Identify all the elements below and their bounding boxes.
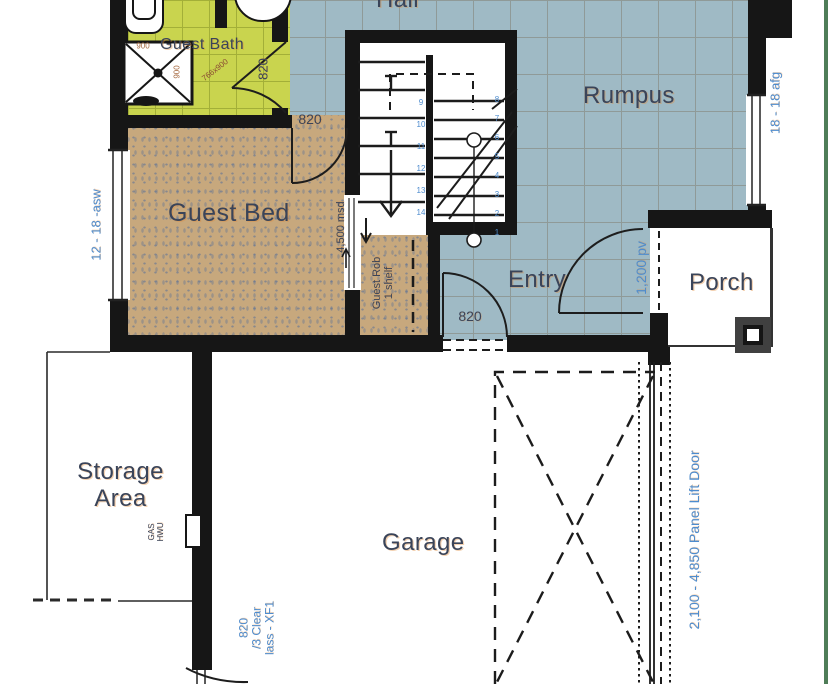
stair-tread-number: 4 — [495, 172, 499, 180]
garage-label: Garage — [382, 529, 464, 557]
guest-bed-label: Guest Bed — [168, 199, 290, 228]
stair-treads — [358, 62, 504, 215]
stair-tread-number: 2 — [495, 210, 499, 218]
stair-tread-number: 1 — [495, 229, 499, 237]
guest-robe-line2: 1 shelf — [383, 257, 395, 310]
stair-tread-number: 8 — [495, 96, 499, 104]
hwu-line2: HWU — [156, 522, 165, 541]
stair-down-arrow — [361, 150, 402, 242]
stair-tread-number: 6 — [495, 134, 499, 142]
hall-label: Hall — [376, 0, 419, 14]
bed-door-dim: 820 — [298, 111, 321, 127]
stair-tread-number: 9 — [419, 99, 423, 107]
stair-tread-number: 14 — [417, 209, 426, 217]
porch-label: Porch — [689, 269, 754, 297]
stair-tread-number: 3 — [495, 191, 499, 199]
front-door-dim: 1,200 pv — [633, 241, 649, 295]
page-border-line — [824, 0, 828, 684]
bed-door-arc — [292, 128, 347, 183]
stair-upper-flight-dashed — [390, 74, 473, 110]
garage-car-space — [495, 372, 655, 684]
shower-depth-dim: 900 — [173, 65, 182, 78]
left-window-dim: 12 - 18 -asw — [89, 189, 104, 261]
storage-area-label: Storage Area — [58, 458, 183, 512]
rumpus-label: Rumpus — [583, 82, 675, 110]
stair-tread-number: 11 — [417, 143, 425, 151]
stair-tread-number: 12 — [417, 165, 426, 173]
guest-robe-label: Guest Rob 1 shelf — [371, 257, 395, 310]
stair-tread-number: 7 — [495, 115, 499, 123]
garage-rear-door-arc — [186, 668, 248, 682]
window-glazing — [108, 95, 766, 684]
bath-door-arc — [232, 88, 286, 113]
garage-window-dim: 820 /3 Clear lass - XF1 — [238, 601, 277, 655]
guest-bath-label: Guest Bath — [160, 36, 244, 54]
garage-window-dim-line3: lass - XF1 — [264, 601, 277, 655]
stair-numbers-left-flight: 9 1011121314 — [414, 99, 428, 217]
garage-lift-door-lines — [639, 362, 670, 684]
entry-door-arc — [443, 273, 507, 337]
right-window-dim: 18 - 18 afg — [768, 72, 783, 134]
entry-door-dim: 820 — [458, 308, 481, 324]
stair-break-line — [437, 89, 517, 247]
garage-lift-door-dim: 2,100 - 4,850 Panel Lift Door — [686, 450, 702, 629]
hwu-label: GAS HWU — [147, 522, 165, 541]
entry-label: Entry — [508, 266, 566, 294]
stair-tread-number: 5 — [495, 153, 499, 161]
stair-tread-number: 10 — [417, 121, 426, 129]
front-door-arc — [559, 229, 643, 313]
stair-tread-number: 13 — [417, 187, 426, 195]
shower-width-dim: 900 — [136, 42, 149, 51]
bath-door-dim: 820 — [256, 58, 271, 80]
hwu-line1: GAS — [147, 522, 156, 541]
guest-robe-line1: Guest Rob — [371, 257, 383, 310]
robe-msd-dim: 4,500 msd — [335, 201, 347, 252]
stair-numbers-right-flight: 8 7654321 — [491, 96, 503, 237]
floor-plan: Hall Guest Bath Rumpus Guest Bed Entry P… — [0, 0, 828, 684]
